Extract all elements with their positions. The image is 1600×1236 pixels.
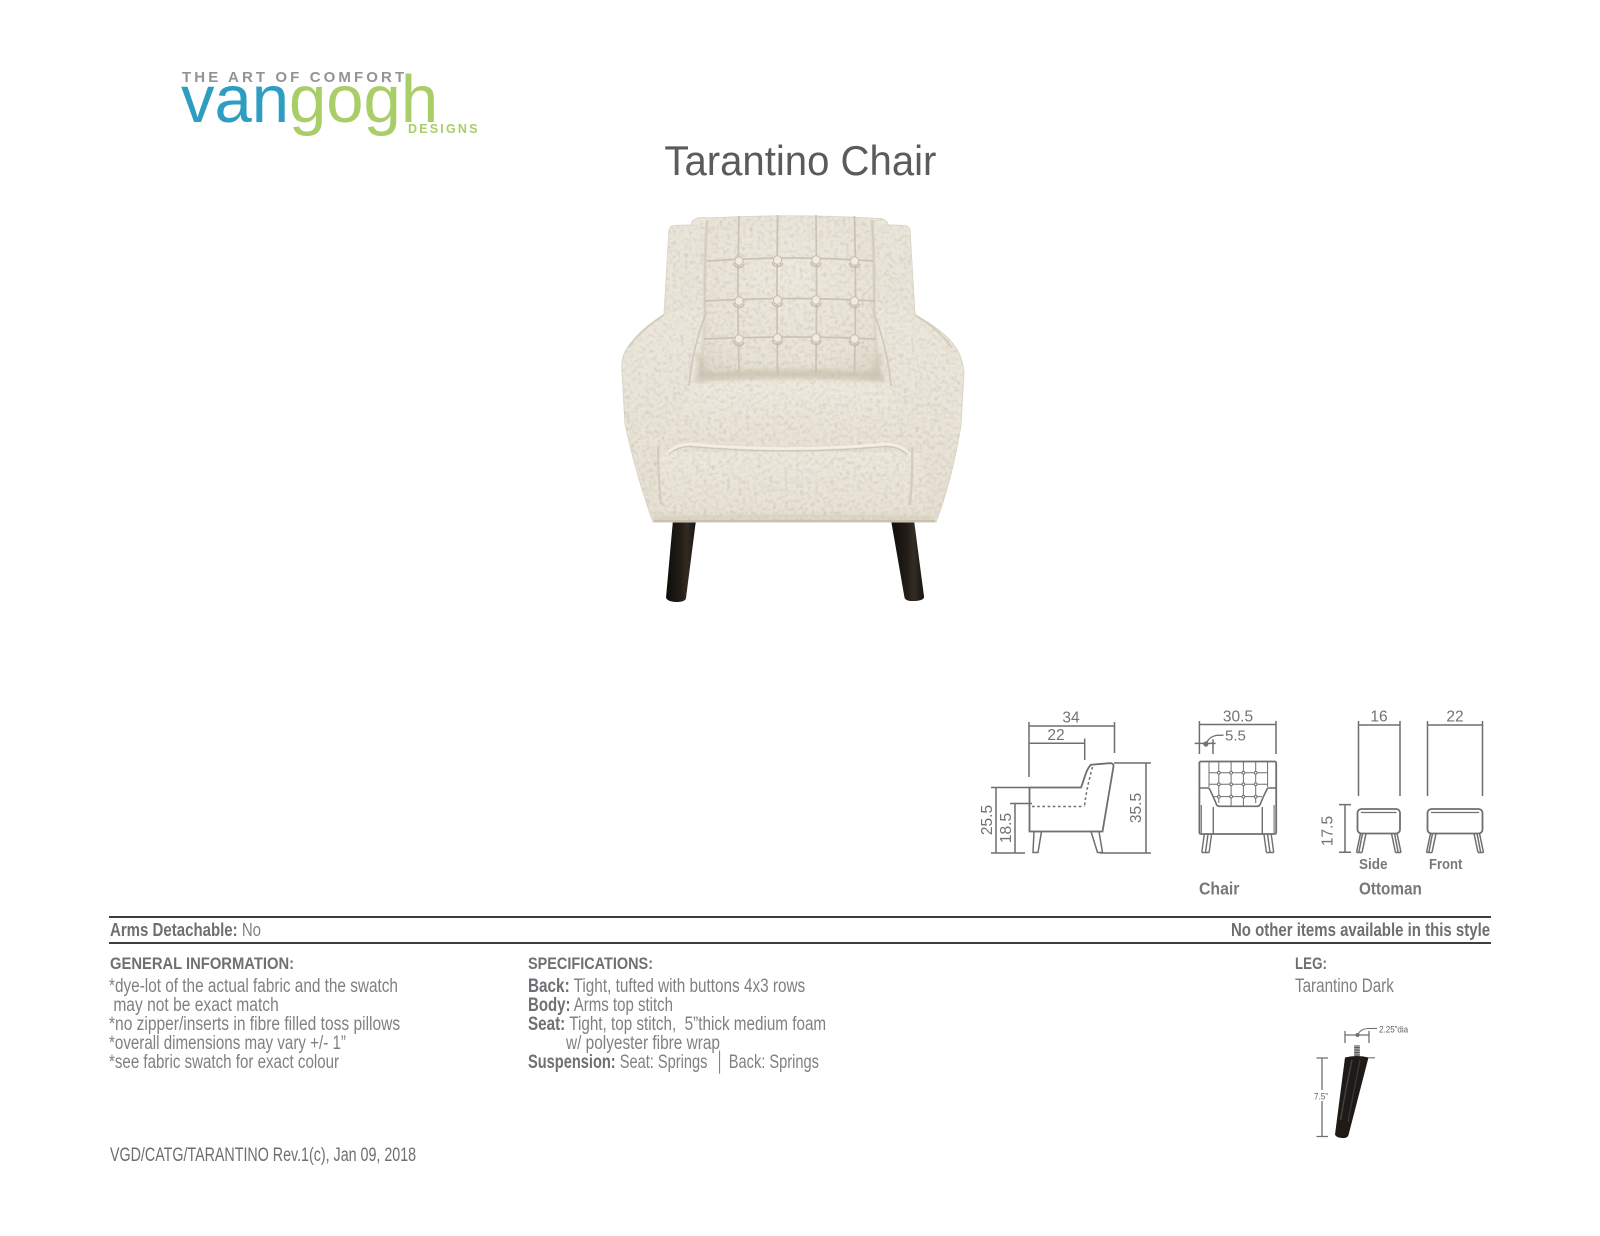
svg-text:2.25”dia: 2.25”dia	[1379, 1024, 1408, 1035]
svg-text:7.5”: 7.5”	[1314, 1091, 1328, 1102]
svg-text:17.5: 17.5	[1320, 816, 1337, 846]
svg-text:25.5: 25.5	[980, 805, 996, 835]
svg-text:34: 34	[1062, 710, 1080, 727]
svg-text:Chair: Chair	[1199, 879, 1240, 899]
svg-text:Ottoman: Ottoman	[1359, 878, 1422, 898]
svg-text:22: 22	[1047, 727, 1064, 744]
svg-text:35.5: 35.5	[1128, 793, 1145, 823]
svg-text:30.5: 30.5	[1223, 709, 1253, 726]
svg-text:22: 22	[1446, 709, 1463, 726]
svg-text:16: 16	[1370, 709, 1387, 726]
svg-text:18.5: 18.5	[998, 813, 1015, 843]
svg-text:5.5: 5.5	[1225, 728, 1246, 745]
svg-text:Side: Side	[1359, 856, 1388, 873]
svg-text:Front: Front	[1429, 855, 1463, 872]
